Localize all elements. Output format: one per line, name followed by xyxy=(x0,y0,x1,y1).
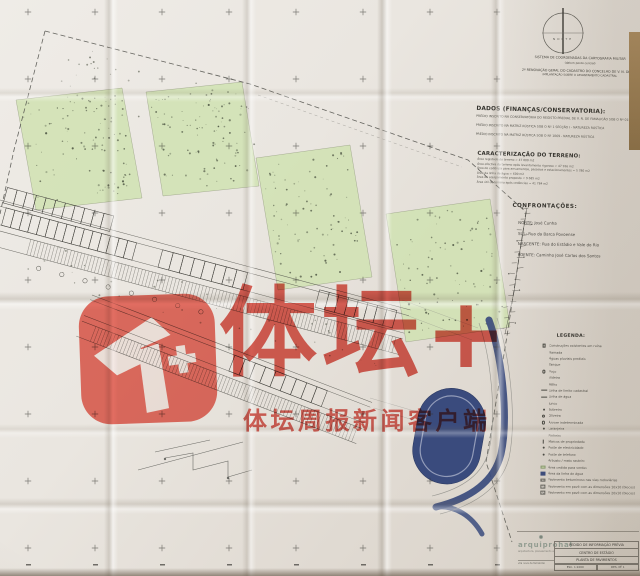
section-dados: DADOS (FINANÇAS/CONSERVATORIA): PRÉDIO I… xyxy=(476,106,639,143)
ring-legend-symbol xyxy=(542,414,546,418)
title-block-table: PEDIDO DE INFORMAÇÃO PRÉVIACENTRO DE EST… xyxy=(554,541,639,565)
section-legenda-title: LEGENDA: xyxy=(557,334,640,340)
dash-legend-symbol xyxy=(541,390,547,391)
blue-legend-symbol xyxy=(541,472,546,476)
legend-label: Poste de electricidade xyxy=(548,446,583,450)
section-caracterizacao-lines: Área registada do terreno = 47 000 m2Áre… xyxy=(477,157,640,189)
title-block-row: CENTRO DE ESTÁGIO xyxy=(555,549,638,556)
dot-legend-symbol xyxy=(542,447,544,449)
legend-label: Área da linha de água xyxy=(548,472,583,476)
dot-legend-symbol xyxy=(542,453,544,455)
section-confrontacoes: CONFRONTAÇÕES: NORTE: José CunhaSUL: Rua… xyxy=(512,203,639,263)
legend-label: Arbusto / mato rasteiro xyxy=(548,459,585,463)
legend-label: Árvore indeterminada xyxy=(548,421,583,425)
legend-label: Pavimento betuminoso nas vias rodoviária… xyxy=(548,478,617,483)
section-confrontacoes-title: CONFRONTAÇÕES: xyxy=(512,203,638,211)
circle-legend-symbol xyxy=(542,370,546,374)
legend-label: Pavimento em pavê com as dimensões 10x10… xyxy=(548,484,635,489)
hatch-legend-symbol xyxy=(540,485,545,489)
architect-logo-tagline: arquitectura, planeamento e urbanismo, l… xyxy=(518,550,554,553)
legend-row: Pavimento em pavê com as dimensões 20x10… xyxy=(539,490,639,497)
tick-legend-symbol xyxy=(543,440,544,444)
legend-label: Laranjeira xyxy=(548,427,564,431)
architect-address: vila nova de famalicão xyxy=(518,560,554,565)
site-plan-photo: NORTE SISTEMA DE COORDENADAS DA CARTOGRA… xyxy=(0,0,640,576)
photo-bottom-shadow xyxy=(0,568,640,576)
watermark-tagline: 体坛周报新闻客户端 xyxy=(243,401,491,436)
legend-label: Pinheiro xyxy=(548,433,561,437)
hatch-legend-symbol xyxy=(540,491,545,495)
line-legend-symbol xyxy=(541,396,547,397)
section-confrontacoes-lines: NORTE: José CunhaSUL: Rua da Barca Povoe… xyxy=(518,218,639,262)
legend-list: Construções existentes em ruínaRamadaÁgu… xyxy=(539,343,640,497)
legend-label: Poste de telefone xyxy=(548,452,576,456)
legend-label: Sobreiro xyxy=(549,408,562,412)
hatch-legend-symbol xyxy=(540,478,545,482)
legend-label: Poço xyxy=(549,369,557,373)
legend-label: Tanque xyxy=(549,363,560,367)
photo-backdrop-edge xyxy=(629,32,640,150)
confrontation-line: POENTE: Caminho José Carlos dos Santos xyxy=(518,250,638,263)
dot-legend-symbol xyxy=(543,409,545,411)
legend-label: Ramada xyxy=(549,350,562,354)
titan-logo-glyph xyxy=(78,293,218,426)
section-dados-lines: PRÉDIO INSCRITO NA CONSERVATÓRIA DO REGI… xyxy=(476,112,639,143)
sheet-notes: SISTEMA DE COORDENADAS DA CARTOGRAFIA MI… xyxy=(522,55,638,79)
section-caracterizacao: CARACTERIZAÇÃO DO TERRENO: Área registad… xyxy=(477,151,640,189)
watermark-brand-text: 体坛+ xyxy=(219,278,512,390)
legend-label: Construções existentes em ruína xyxy=(549,344,602,348)
titan-sports-app-icon xyxy=(78,293,218,426)
legend-label: Área cedida para verdes xyxy=(548,465,587,469)
section-legenda: LEGENDA: Construções existentes em ruína… xyxy=(539,334,640,497)
legend-label: Marcos de propriedade xyxy=(548,440,585,444)
north-label: NORTE xyxy=(531,37,595,41)
legend-label: Linha de água xyxy=(549,395,572,399)
dot-legend-symbol xyxy=(542,428,544,430)
legend-label: Águas pluviais prediais xyxy=(549,357,586,361)
legend-label: Oliveira xyxy=(548,414,560,418)
title-block-row: PEDIDO DE INFORMAÇÃO PRÉVIA xyxy=(555,542,638,549)
legend-label: Pavimento em pavê com as dimensões 20x10… xyxy=(548,491,635,496)
legend-label: Linha de limite cadastral xyxy=(549,389,588,393)
logo-globe-icon xyxy=(539,535,543,539)
stadium-track xyxy=(407,383,491,489)
section-sketch xyxy=(138,440,252,479)
legend-label: Milho xyxy=(549,382,558,386)
green-legend-symbol xyxy=(541,465,546,469)
circle-legend-symbol xyxy=(542,421,546,425)
legend-label: Junco xyxy=(549,401,558,405)
legend-label: Videira xyxy=(549,376,560,380)
title-block-row: PLANTA DE PAVIMENTOS xyxy=(555,557,638,564)
square-legend-symbol xyxy=(542,344,546,348)
